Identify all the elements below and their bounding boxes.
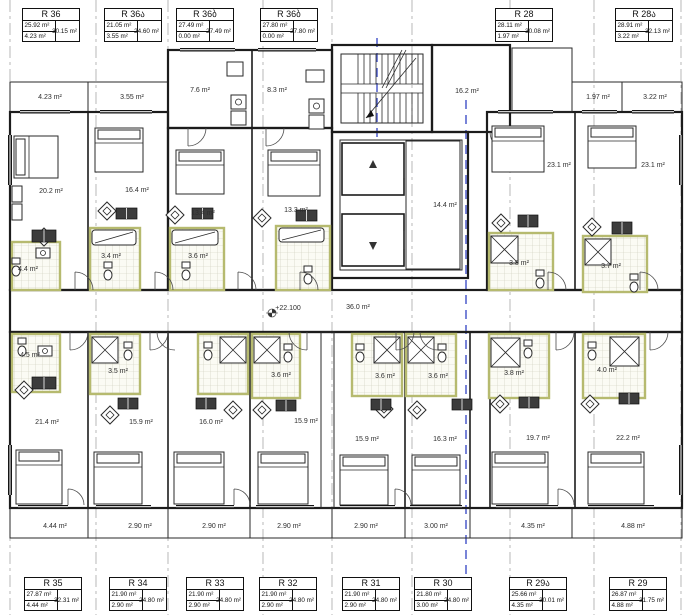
room-id: R 35: [25, 578, 81, 590]
room-id: R 31: [343, 578, 399, 590]
area-label: 36.0 m²: [346, 304, 370, 311]
wardrobe: [12, 186, 22, 220]
area-label: 21.4 m²: [35, 419, 59, 426]
area-label: 3.8 m²: [509, 260, 530, 267]
floor-plan-sheet: 4.23 m²3.55 m²7.6 m²8.3 m²16.2 m²1.97 m²…: [0, 0, 686, 615]
room-total-area: 24.80 m²: [137, 590, 166, 610]
room-total-area: 27.80 m²: [288, 21, 317, 41]
area-label: 19.7 m²: [526, 435, 550, 442]
area-label: 3.6 m²: [271, 372, 292, 379]
area-label: 3.5 m²: [108, 368, 129, 375]
area-label: 2.90 m²: [128, 523, 152, 530]
room-total-area: 24.80 m²: [442, 590, 471, 610]
area-label: 3.6 m²: [428, 373, 449, 380]
area-label: 3.6 m²: [188, 253, 209, 260]
area-label: 23.1 m²: [641, 162, 665, 169]
room-id: R 28: [496, 9, 552, 21]
room-total-area: 24.80 m²: [214, 590, 243, 610]
room-title-block: R 3527.87 m²4.44 m²32.31 m²: [24, 577, 82, 611]
room-title-block: R 36ბ27.49 m²0.00 m²27.49 m²: [176, 8, 234, 42]
room-total-area: 30.15 m²: [50, 21, 79, 41]
room-title-block: R 28ა28.91 m²3.22 m²32.13 m²: [615, 8, 673, 42]
area-label: +22.100: [275, 305, 301, 312]
doors: [68, 128, 668, 505]
balcony-bottom: [10, 508, 682, 538]
area-label: 4.5 m²: [20, 352, 41, 359]
stair-core: [332, 45, 432, 132]
area-label: 16.0 m²: [199, 419, 223, 426]
room-title-block: R 2926.87 m²4.88 m²31.75 m²: [609, 577, 667, 611]
area-label: 4.0 m²: [597, 367, 618, 374]
room-total-area: 30.01 m²: [537, 590, 566, 610]
area-label: 15.9 m²: [294, 418, 318, 425]
area-label: 3.6 m²: [375, 373, 396, 380]
stair-direction-arrow: [366, 58, 416, 118]
area-label: 3.22 m²: [643, 94, 667, 101]
beds: [14, 126, 644, 505]
room-id: R 36: [23, 9, 79, 21]
area-label: 16.4 m²: [125, 187, 149, 194]
area-label: 13.3 m²: [284, 207, 308, 214]
area-label: 15.9 m²: [129, 419, 153, 426]
area-label: 7.6 m²: [190, 87, 211, 94]
hatched-void: [512, 48, 572, 112]
room-id: R 36ბ: [261, 9, 317, 21]
area-label: 3.4 m²: [101, 253, 122, 260]
area-label: 3.8 m²: [504, 370, 525, 377]
room-total-area: 27.49 m²: [204, 21, 233, 41]
room-title-block: R 29ა25.66 m²4.35 m²30.01 m²: [509, 577, 567, 611]
area-label: 22.2 m²: [616, 435, 640, 442]
area-label: 15.9 m²: [355, 436, 379, 443]
elevator-shaft-1: [342, 143, 404, 195]
room-total-area: 31.75 m²: [637, 590, 666, 610]
room-id: R 28ა: [616, 9, 672, 21]
elevator-shaft-2: [342, 214, 404, 266]
room-id: R 36ა: [105, 9, 161, 21]
area-label: 3.7 m²: [601, 263, 622, 270]
area-label: 2.90 m²: [277, 523, 301, 530]
balcony-top-left: [10, 82, 168, 112]
room-id: R 29ა: [510, 578, 566, 590]
room-title-block: R 36ა21.05 m²3.55 m²24.60 m²: [104, 8, 162, 42]
area-label: 16.3 m²: [433, 436, 457, 443]
area-label: 4.44 m²: [43, 523, 67, 530]
area-label: 4.88 m²: [621, 523, 645, 530]
room-title-block: R 2828.11 m²1.97 m²30.08 m²: [495, 8, 553, 42]
room-title-block: R 3221.90 m²2.90 m²24.80 m²: [259, 577, 317, 611]
area-label: 4.35 m²: [521, 523, 545, 530]
area-label: 1.97 m²: [586, 94, 610, 101]
shaft: [227, 62, 243, 76]
area-label: 14.4 m²: [433, 202, 457, 209]
area-label: 2.90 m²: [202, 523, 226, 530]
room-total-area: 32.13 m²: [643, 21, 672, 41]
room-id: R 29: [610, 578, 666, 590]
area-label: 20.2 m²: [39, 188, 63, 195]
elevator-down-arrow: [369, 242, 377, 250]
room-total-area: 24.80 m²: [370, 590, 399, 610]
elevator-up-arrow: [369, 160, 377, 168]
floor-plan: 4.23 m²3.55 m²7.6 m²8.3 m²16.2 m²1.97 m²…: [0, 0, 686, 615]
area-label: 3.55 m²: [120, 94, 144, 101]
area-label: 13.4 m²: [191, 210, 215, 217]
area-label: 16.2 m²: [455, 88, 479, 95]
room-title-block: R 36ბ27.80 m²0.00 m²27.80 m²: [260, 8, 318, 42]
room-title-block: R 3021.80 m²3.00 m²24.80 m²: [414, 577, 472, 611]
kitchen-counters: [231, 95, 324, 129]
corridor: [10, 290, 682, 332]
room-title-block: R 3625.92 m²4.23 m²30.15 m²: [22, 8, 80, 42]
room-title-block: R 3421.90 m²2.90 m²24.80 m²: [109, 577, 167, 611]
room-id: R 36ბ: [177, 9, 233, 21]
room-total-area: 24.60 m²: [132, 21, 161, 41]
area-label: 3.00 m²: [424, 523, 448, 530]
area-label: 4.23 m²: [38, 94, 62, 101]
room-total-area: 30.08 m²: [523, 21, 552, 41]
area-label: 2.90 m²: [354, 523, 378, 530]
room-id: R 33: [187, 578, 243, 590]
room-id: R 32: [260, 578, 316, 590]
room-title-block: R 3321.90 m²2.90 m²24.80 m²: [186, 577, 244, 611]
room-id: R 34: [110, 578, 166, 590]
room-total-area: 32.31 m²: [52, 590, 81, 610]
room-total-area: 24.80 m²: [287, 590, 316, 610]
room-id: R 30: [415, 578, 471, 590]
bathtubs: [92, 228, 324, 245]
area-label: 23.1 m²: [547, 162, 571, 169]
shaft: [306, 70, 324, 82]
area-label: 8.3 m²: [267, 87, 288, 94]
room-title-block: R 3121.90 m²2.90 m²24.80 m²: [342, 577, 400, 611]
area-label: 4.4 m²: [18, 266, 39, 273]
